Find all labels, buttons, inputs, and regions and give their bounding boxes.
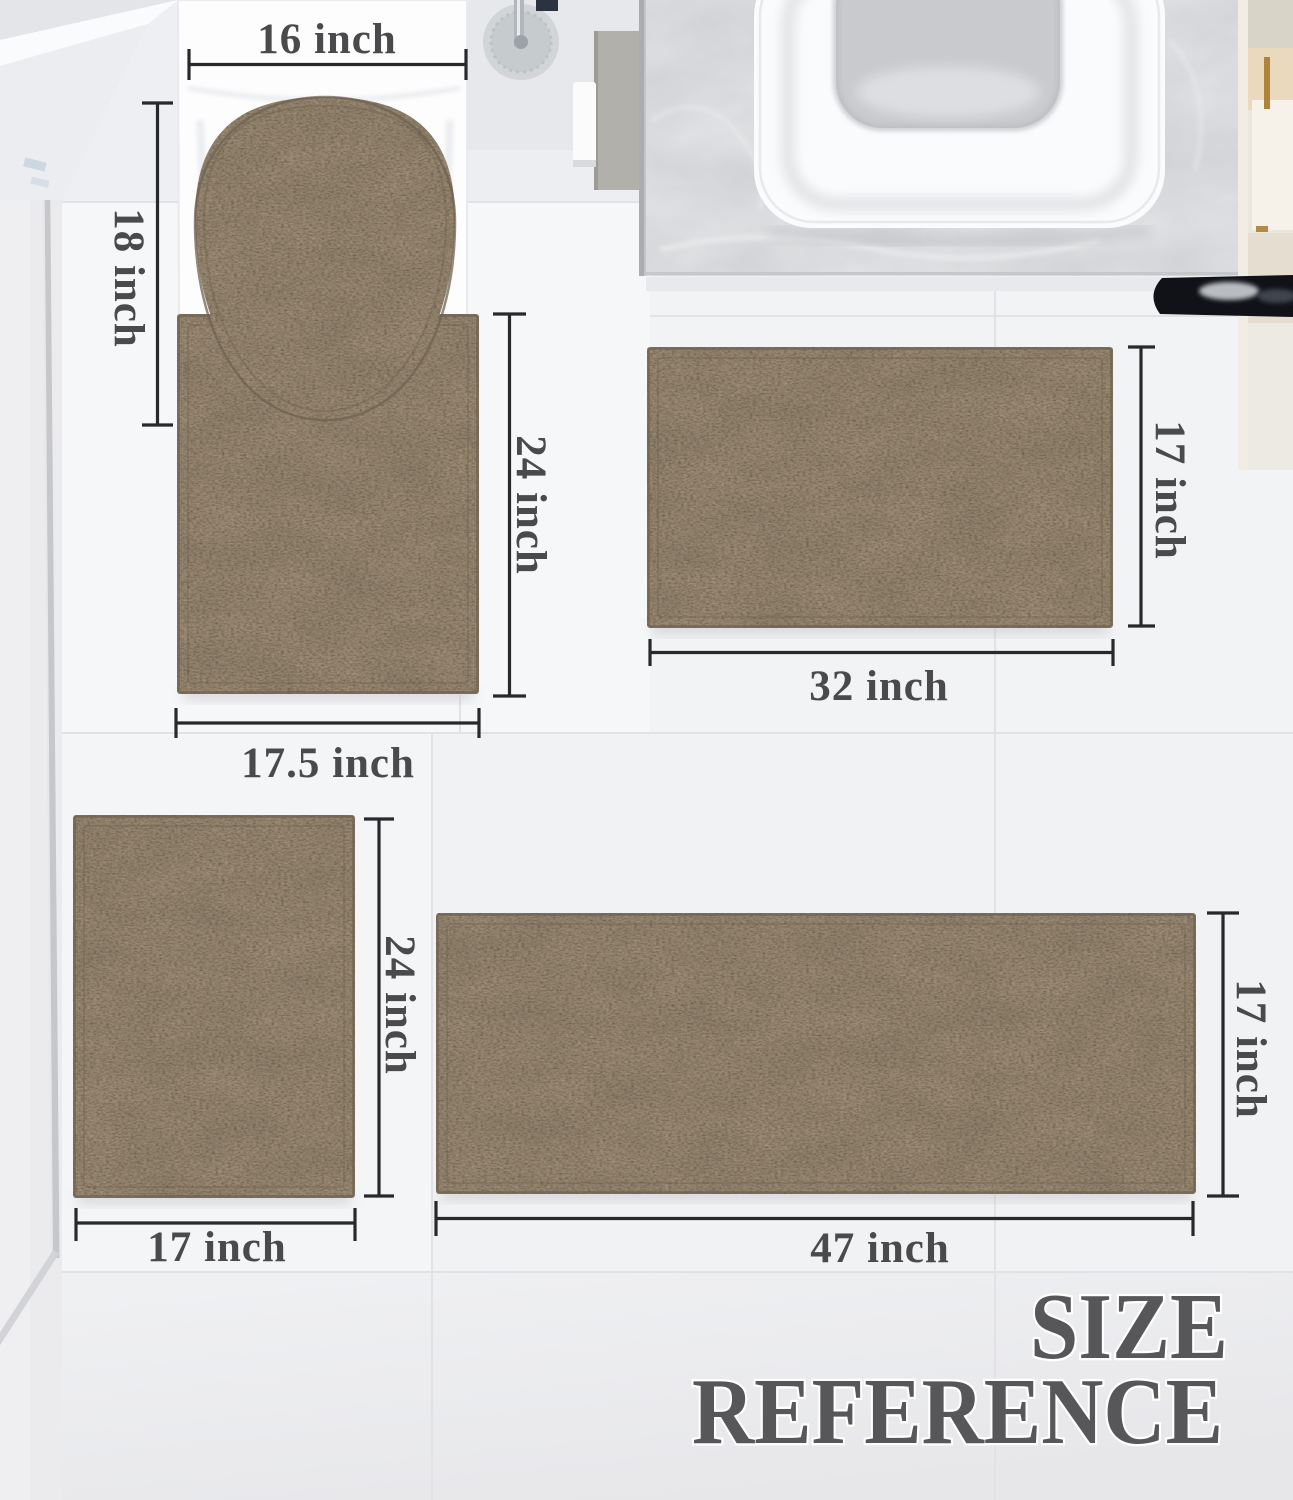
svg-text:24 inch: 24 inch xyxy=(507,435,554,575)
svg-text:47 inch: 47 inch xyxy=(810,1225,950,1272)
svg-text:18 inch: 18 inch xyxy=(105,208,152,348)
svg-text:REFERENCE: REFERENCE xyxy=(692,1360,1223,1464)
svg-text:16 inch: 16 inch xyxy=(257,16,397,63)
svg-text:24 inch: 24 inch xyxy=(376,935,423,1075)
svg-text:17 inch: 17 inch xyxy=(1146,420,1193,560)
svg-text:17.5 inch: 17.5 inch xyxy=(241,740,415,787)
svg-text:17 inch: 17 inch xyxy=(147,1224,287,1271)
svg-text:17 inch: 17 inch xyxy=(1227,979,1274,1119)
svg-text:32 inch: 32 inch xyxy=(809,663,949,710)
